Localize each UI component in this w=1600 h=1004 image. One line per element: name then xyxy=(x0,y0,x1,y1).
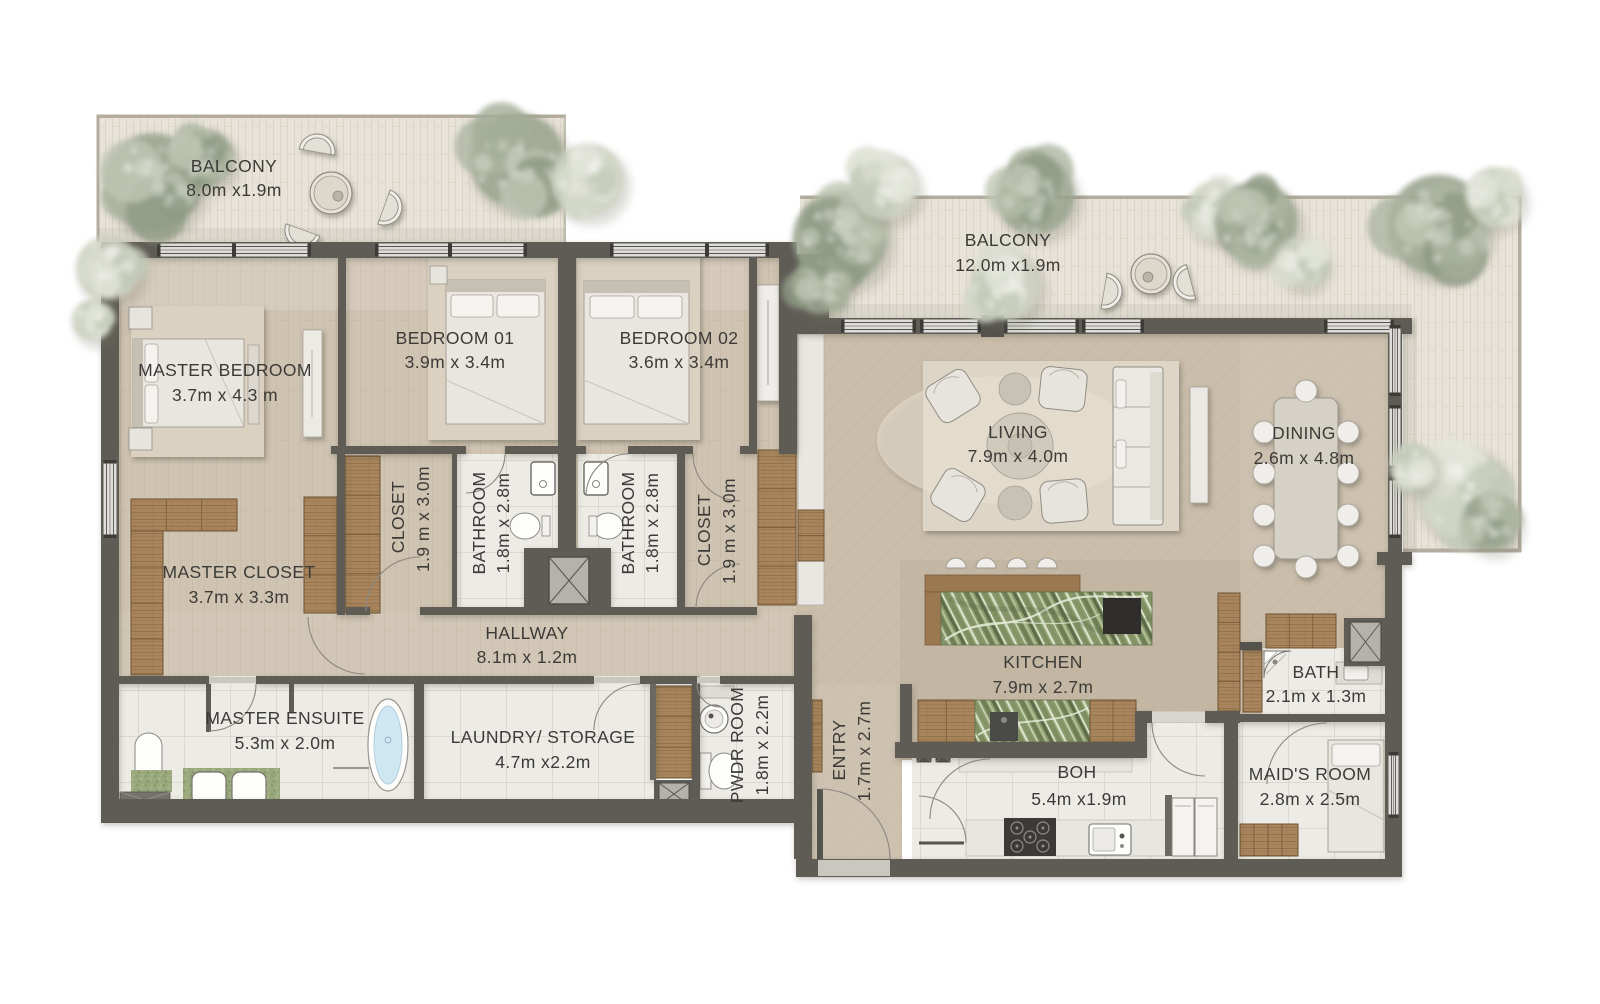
svg-text:7.9m x 2.7m: 7.9m x 2.7m xyxy=(993,677,1094,697)
svg-text:5.3m x 2.0m: 5.3m x 2.0m xyxy=(235,733,336,753)
svg-text:12.0m x1.9m: 12.0m x1.9m xyxy=(955,255,1061,275)
svg-text:1.9 m x 3.0m: 1.9 m x 3.0m xyxy=(413,466,433,572)
svg-text:MASTER ENSUITE: MASTER ENSUITE xyxy=(205,708,364,728)
svg-text:8.1m x 1.2m: 8.1m x 1.2m xyxy=(477,647,578,667)
svg-text:3.7m x 3.3m: 3.7m x 3.3m xyxy=(189,587,290,607)
svg-text:ENTRY: ENTRY xyxy=(829,720,849,781)
svg-text:BEDROOM 01: BEDROOM 01 xyxy=(396,328,515,348)
svg-text:LIVING: LIVING xyxy=(988,422,1048,442)
svg-text:BALCONY: BALCONY xyxy=(191,156,277,176)
svg-text:BALCONY: BALCONY xyxy=(965,230,1051,250)
svg-text:LAUNDRY/ STORAGE: LAUNDRY/ STORAGE xyxy=(451,727,636,747)
svg-text:2.1m x 1.3m: 2.1m x 1.3m xyxy=(1266,686,1367,706)
svg-text:3.7m x 4.3 m: 3.7m x 4.3 m xyxy=(172,385,278,405)
svg-text:1.8m x 2.8m: 1.8m x 2.8m xyxy=(642,473,662,574)
svg-text:DINING: DINING xyxy=(1272,423,1336,443)
svg-text:1.7m x 2.7m: 1.7m x 2.7m xyxy=(854,701,874,802)
svg-text:MASTER CLOSET: MASTER CLOSET xyxy=(162,562,315,582)
svg-text:3.6m x 3.4m: 3.6m x 3.4m xyxy=(629,352,730,372)
svg-text:2.8m x 2.5m: 2.8m x 2.5m xyxy=(1260,789,1361,809)
svg-text:4.7m x2.2m: 4.7m x2.2m xyxy=(495,752,590,772)
svg-text:KITCHEN: KITCHEN xyxy=(1003,652,1083,672)
svg-text:BATHROOM: BATHROOM xyxy=(618,471,638,574)
svg-text:3.9m x 3.4m: 3.9m x 3.4m xyxy=(405,352,506,372)
svg-text:1.8m x 2.8m: 1.8m x 2.8m xyxy=(493,473,513,574)
svg-text:BOH: BOH xyxy=(1057,762,1096,782)
svg-text:8.0m x1.9m: 8.0m x1.9m xyxy=(186,180,281,200)
svg-text:BEDROOM 02: BEDROOM 02 xyxy=(620,328,739,348)
svg-text:7.9m x 4.0m: 7.9m x 4.0m xyxy=(968,446,1069,466)
svg-text:BATH: BATH xyxy=(1293,662,1340,682)
svg-text:PWDR ROOM: PWDR ROOM xyxy=(727,687,747,803)
svg-text:CLOSET: CLOSET xyxy=(388,481,408,553)
svg-text:HALLWAY: HALLWAY xyxy=(485,623,568,643)
svg-text:BATHROOM: BATHROOM xyxy=(469,471,489,574)
svg-text:2.6m x 4.8m: 2.6m x 4.8m xyxy=(1254,448,1355,468)
svg-text:5.4m x1.9m: 5.4m x1.9m xyxy=(1031,789,1126,809)
svg-text:MAID'S ROOM: MAID'S ROOM xyxy=(1249,764,1371,784)
svg-text:MASTER BEDROOM: MASTER BEDROOM xyxy=(138,360,312,380)
svg-text:CLOSET: CLOSET xyxy=(694,494,714,566)
svg-text:1.8m x 2.2m: 1.8m x 2.2m xyxy=(752,695,772,796)
svg-text:1.9 m x 3.0m: 1.9 m x 3.0m xyxy=(719,478,739,584)
